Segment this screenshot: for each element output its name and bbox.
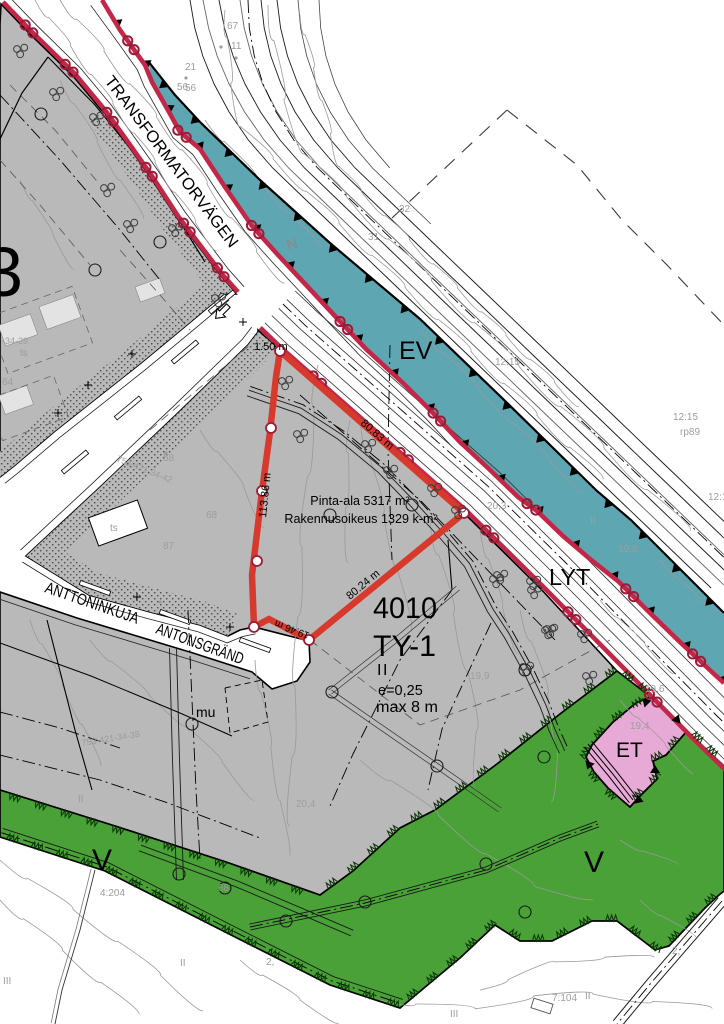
svg-text:1.50 m: 1.50 m	[254, 341, 288, 353]
svg-text:LYT: LYT	[549, 564, 590, 590]
svg-text:20,4: 20,4	[296, 799, 316, 810]
svg-text:II: II	[590, 516, 596, 527]
svg-text:3: 3	[0, 233, 23, 311]
svg-text:4:204: 4:204	[100, 888, 125, 899]
svg-text:ts: ts	[20, 348, 28, 359]
svg-text:4010: 4010	[373, 592, 437, 625]
svg-text:19,9: 19,9	[470, 671, 490, 682]
svg-text:III: III	[3, 976, 11, 987]
svg-text:12:15: 12:15	[495, 357, 520, 368]
svg-text:68: 68	[218, 883, 230, 894]
svg-text:21: 21	[185, 62, 197, 73]
svg-text:V: V	[92, 844, 112, 877]
svg-text:II: II	[180, 958, 186, 969]
svg-text:11: 11	[231, 41, 242, 52]
svg-text:-34-39: -34-39	[2, 336, 28, 346]
svg-text:mu: mu	[196, 704, 215, 720]
svg-text:19,4: 19,4	[630, 721, 650, 732]
svg-text:II: II	[585, 991, 591, 1002]
svg-text:ET: ET	[616, 739, 643, 762]
svg-text:31: 31	[368, 232, 380, 243]
svg-text:2,: 2,	[672, 946, 680, 957]
svg-text:rp89: rp89	[680, 427, 700, 438]
svg-text:Rakennusoikeus 1329 k-m²: Rakennusoikeus 1329 k-m²	[284, 512, 437, 526]
svg-text:12:15: 12:15	[673, 412, 698, 423]
svg-text:87: 87	[163, 541, 175, 552]
svg-text:68: 68	[206, 510, 218, 521]
svg-text:II: II	[78, 794, 84, 805]
svg-text:32: 32	[399, 204, 411, 215]
svg-text:2,: 2,	[266, 957, 274, 968]
svg-text:20,3: 20,3	[487, 501, 507, 512]
svg-text:max 8 m: max 8 m	[376, 699, 438, 716]
svg-text:19,6: 19,6	[645, 684, 665, 695]
svg-text:12:1: 12:1	[708, 492, 724, 503]
svg-text:ts: ts	[110, 523, 118, 534]
svg-text:67: 67	[227, 21, 239, 32]
svg-text:64: 64	[2, 377, 14, 388]
svg-text:e=0,25: e=0,25	[378, 683, 423, 699]
svg-text:EV: EV	[399, 337, 433, 365]
svg-text:TY-1: TY-1	[373, 630, 436, 663]
svg-text:19,8: 19,8	[618, 544, 638, 555]
svg-text:II: II	[377, 662, 389, 679]
svg-text:56: 56	[185, 83, 197, 94]
svg-text:V: V	[584, 846, 604, 879]
svg-text:III: III	[450, 1009, 458, 1020]
svg-text:58: 58	[163, 453, 175, 464]
svg-text:7:104: 7:104	[552, 993, 577, 1004]
svg-text:Pinta-ala 5317 m²: Pinta-ala 5317 m²	[310, 494, 409, 508]
